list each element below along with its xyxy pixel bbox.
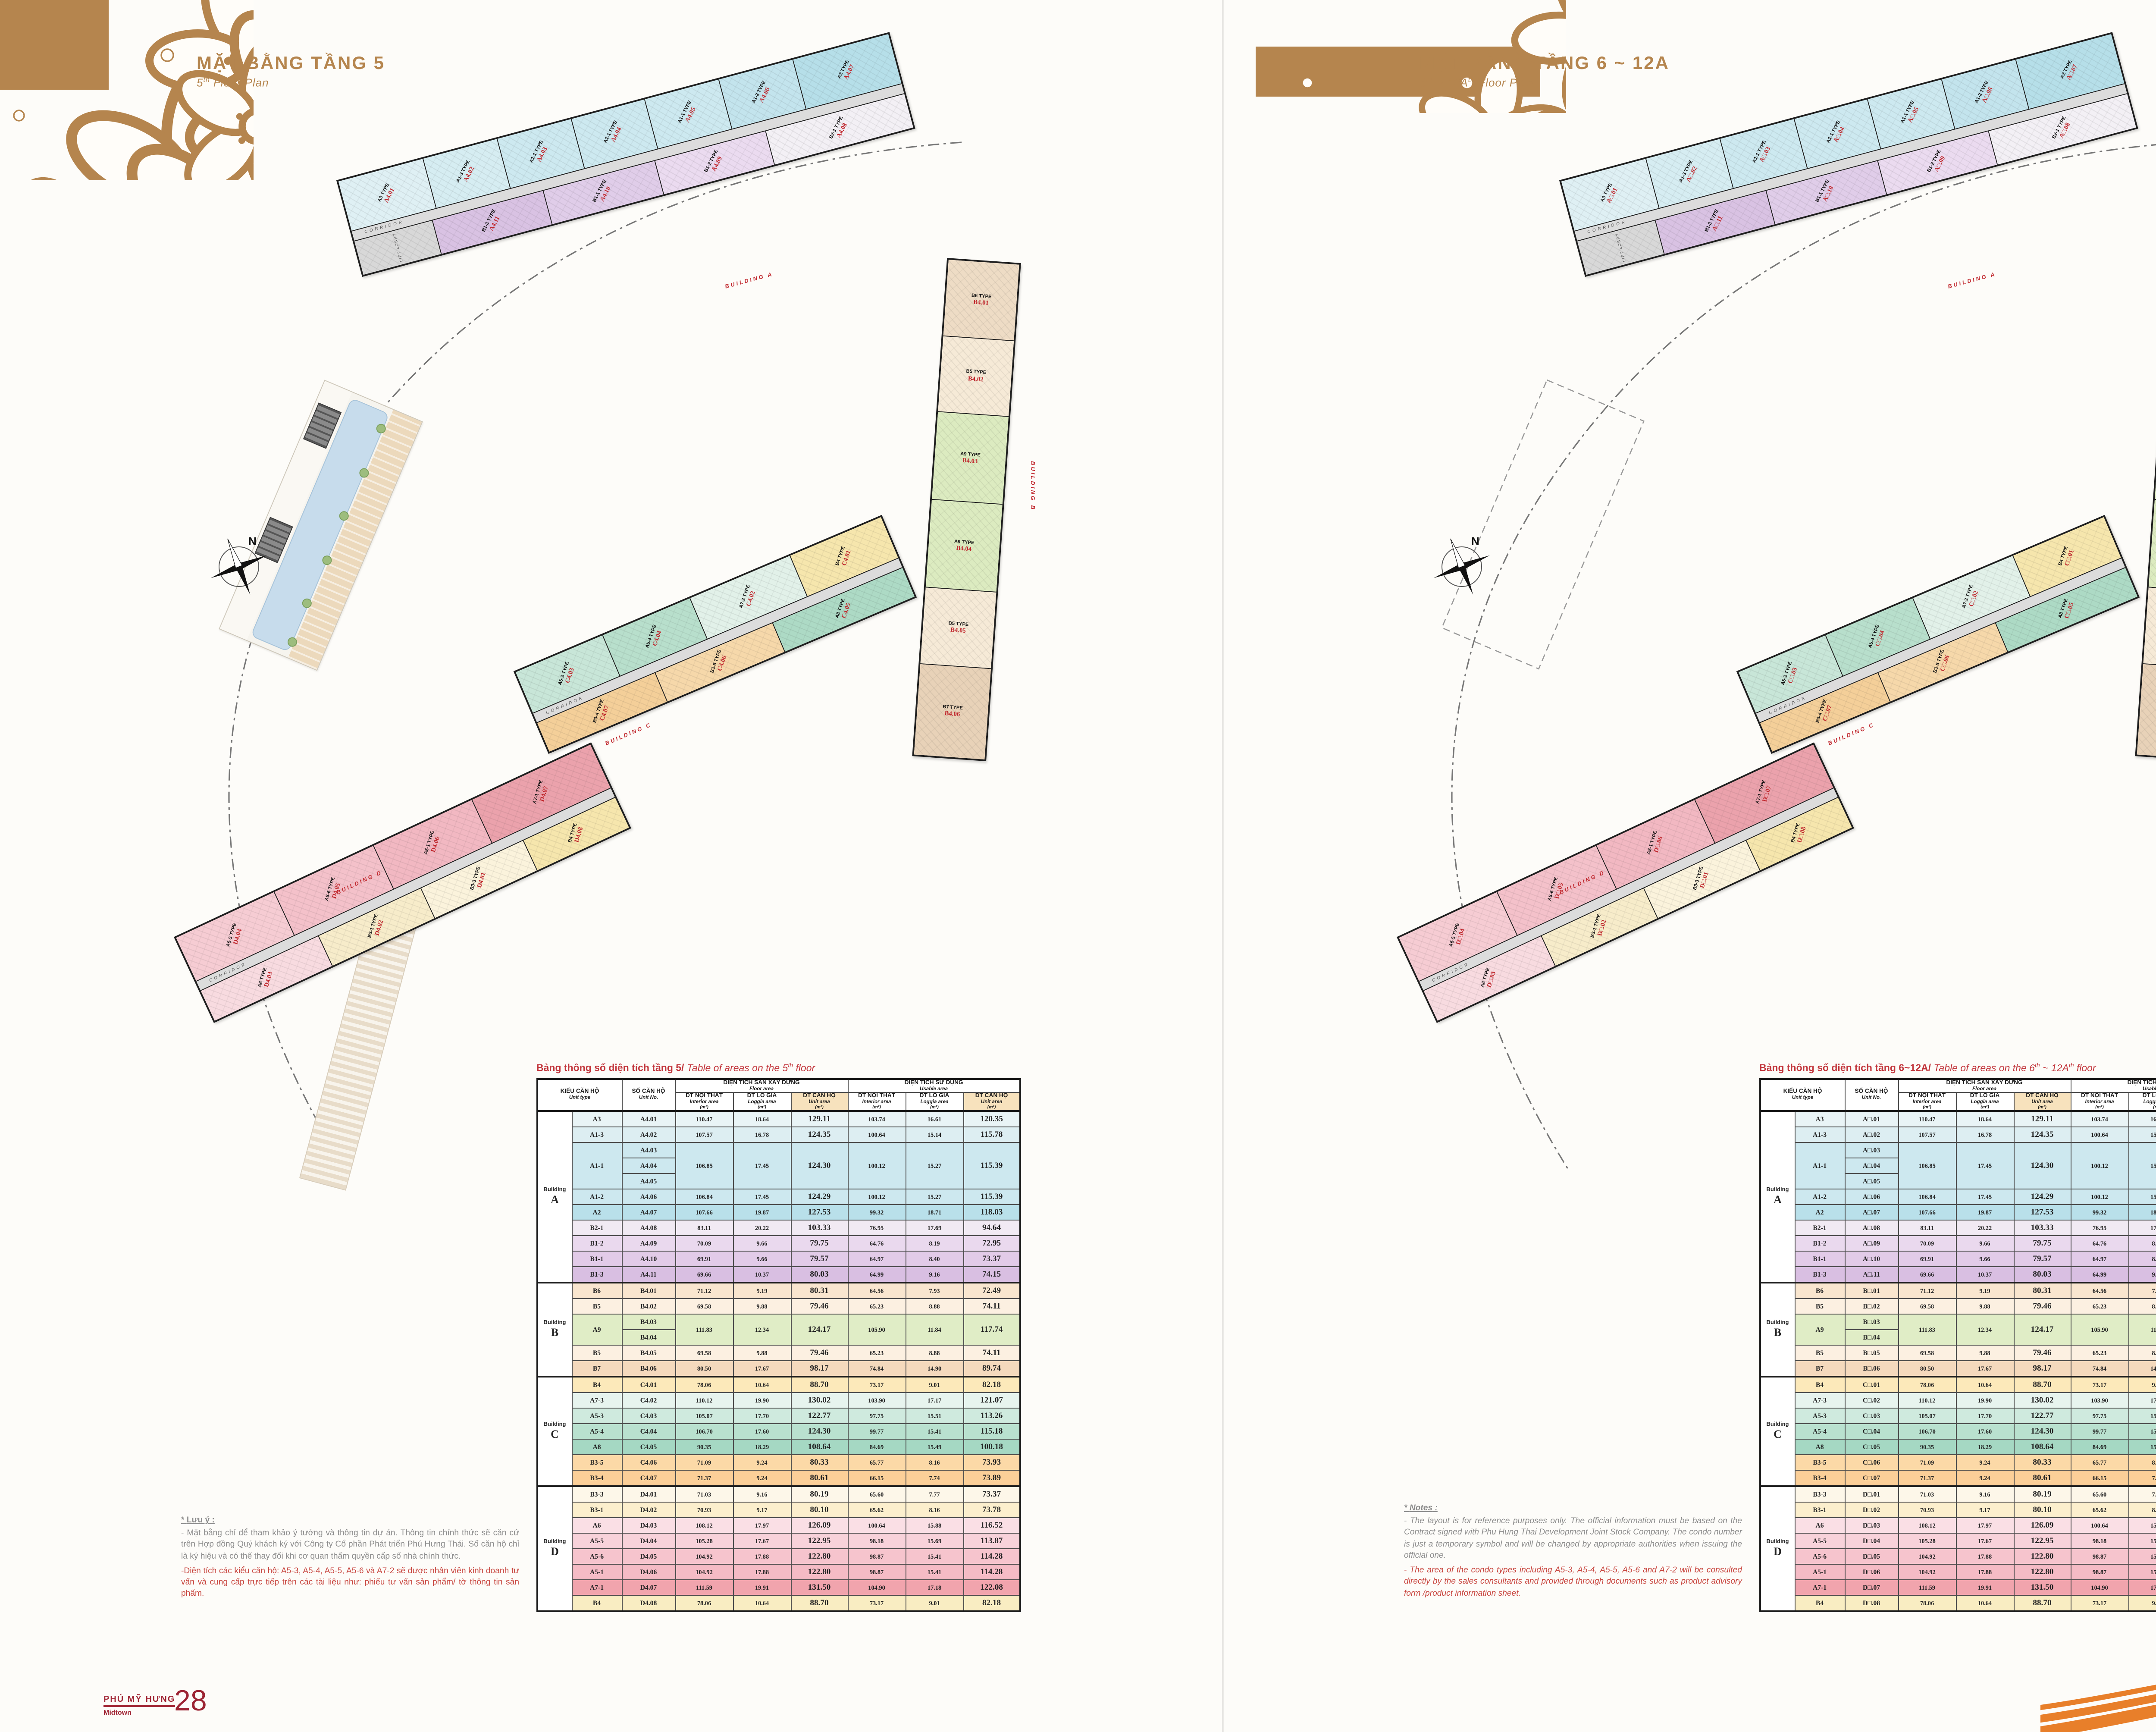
area-value-cell: 88.70 (791, 1596, 848, 1612)
unit-no-cell: D4.05 (622, 1549, 675, 1565)
brand-logo: PHÚ MỸ HƯNG (103, 1695, 175, 1707)
area-value-cell: 124.29 (2014, 1189, 2071, 1205)
area-value-cell: 8.16 (2128, 1455, 2156, 1471)
area-value-cell: 80.50 (675, 1361, 733, 1377)
area-value-cell: 72.95 (963, 1236, 1020, 1252)
area-value-cell: 18.64 (1956, 1111, 2014, 1127)
area-value-cell: 105.07 (675, 1409, 733, 1424)
area-value-cell: 10.37 (1956, 1267, 2014, 1283)
area-table: KIỂU CĂN HỘUnit type SỐ CĂN HỘUnit No. D… (536, 1078, 1021, 1613)
unit-no-cell: C□.03 (1845, 1409, 1898, 1424)
area-value-cell: 71.03 (1898, 1487, 1956, 1503)
area-value-cell: 103.74 (2071, 1111, 2128, 1127)
area-value-cell: 78.06 (675, 1596, 733, 1612)
area-value-cell: 9.16 (2128, 1267, 2156, 1283)
area-value-cell: 103.33 (2014, 1221, 2071, 1236)
area-value-cell: 80.03 (791, 1267, 848, 1283)
area-value-cell: 17.18 (906, 1580, 963, 1596)
area-value-cell: 65.23 (848, 1346, 906, 1361)
area-value-cell: 121.07 (963, 1393, 1020, 1409)
page-gutter (1222, 0, 1224, 1732)
area-value-cell: 122.80 (2014, 1565, 2071, 1580)
area-value-cell: 124.17 (2014, 1315, 2071, 1346)
unit-type-cell: A5-1 (1795, 1565, 1845, 1580)
unit-type-cell: B2-1 (572, 1221, 622, 1236)
area-value-cell: 99.32 (848, 1205, 906, 1221)
area-value-cell: 9.01 (906, 1596, 963, 1612)
area-value-cell: 80.03 (2014, 1267, 2071, 1283)
area-value-cell: 104.92 (675, 1549, 733, 1565)
area-value-cell: 18.64 (733, 1111, 791, 1127)
area-value-cell: 19.87 (1956, 1205, 2014, 1221)
unit-no-cell: D□.02 (1845, 1503, 1898, 1518)
unit-no-cell: A4.07 (622, 1205, 675, 1221)
area-value-cell: 64.99 (2071, 1267, 2128, 1283)
area-value-cell: 98.18 (2071, 1534, 2128, 1549)
area-value-cell: 79.75 (2014, 1236, 2071, 1252)
area-value-cell: 122.80 (791, 1565, 848, 1580)
unit-no-cell: A4.11 (622, 1267, 675, 1283)
area-value-cell: 130.02 (2014, 1393, 2071, 1409)
area-value-cell: 131.50 (791, 1580, 848, 1596)
unit-no-cell: D□.07 (1845, 1580, 1898, 1596)
area-value-cell: 17.18 (2128, 1580, 2156, 1596)
area-value-cell: 9.24 (733, 1455, 791, 1471)
area-value-cell: 9.88 (1956, 1299, 2014, 1315)
unit-no-cell: A4.04 (622, 1158, 675, 1174)
area-value-cell: 99.32 (2071, 1205, 2128, 1221)
area-value-cell: 18.29 (1956, 1440, 2014, 1455)
area-value-cell: 120.35 (963, 1111, 1020, 1127)
area-value-cell: 15.41 (906, 1424, 963, 1440)
area-value-cell: 106.84 (675, 1189, 733, 1205)
area-value-cell: 108.12 (675, 1518, 733, 1534)
area-value-cell: 7.77 (906, 1487, 963, 1503)
area-value-cell: 15.41 (906, 1549, 963, 1565)
unit-no-cell: A4.06 (622, 1189, 675, 1205)
area-value-cell: 70.09 (1898, 1236, 1956, 1252)
area-value-cell: 73.17 (2071, 1377, 2128, 1393)
unit-type-cell: A5-3 (572, 1409, 622, 1424)
area-value-cell: 17.17 (906, 1393, 963, 1409)
unit-no-cell: C□.02 (1845, 1393, 1898, 1409)
table-caption: Bảng thông số diện tích tầng 5/ Table of… (536, 1063, 1026, 1074)
area-value-cell: 94.64 (963, 1221, 1020, 1236)
unit-no-cell: D□.03 (1845, 1518, 1898, 1534)
building-group-cell: BuildingC (537, 1377, 572, 1487)
area-value-cell: 71.03 (675, 1487, 733, 1503)
area-value-cell: 73.78 (963, 1503, 1020, 1518)
area-value-cell: 64.76 (2071, 1236, 2128, 1252)
area-value-cell: 111.83 (1898, 1315, 1956, 1346)
building-b-label: BUILDING B (1029, 461, 1035, 511)
area-value-cell: 17.60 (1956, 1424, 2014, 1440)
area-value-cell: 98.17 (2014, 1361, 2071, 1377)
area-value-cell: 12.34 (1956, 1315, 2014, 1346)
unit-no-cell: B□.03 (1845, 1315, 1898, 1330)
unit-no-cell: B4.03 (622, 1315, 675, 1330)
unit-no-cell: A□.03 (1845, 1143, 1898, 1158)
area-value-cell: 127.53 (2014, 1205, 2071, 1221)
area-value-cell: 80.10 (2014, 1503, 2071, 1518)
area-value-cell: 69.91 (1898, 1252, 1956, 1267)
unit-no-cell: A□.10 (1845, 1252, 1898, 1267)
unit-type-cell: A5-1 (572, 1565, 622, 1580)
area-value-cell: 80.33 (2014, 1455, 2071, 1471)
unit-type-cell: B3-4 (572, 1471, 622, 1487)
area-value-cell: 103.33 (791, 1221, 848, 1236)
area-value-cell: 15.41 (2128, 1424, 2156, 1440)
area-value-cell: 8.88 (906, 1299, 963, 1315)
area-value-cell: 19.91 (1956, 1580, 2014, 1596)
area-value-cell: 100.18 (963, 1440, 1020, 1455)
area-value-cell: 7.93 (2128, 1283, 2156, 1299)
area-value-cell: 114.28 (963, 1549, 1020, 1565)
unit-no-cell: A□.08 (1845, 1221, 1898, 1236)
area-value-cell: 100.64 (2071, 1518, 2128, 1534)
building-group-cell: BuildingA (537, 1111, 572, 1283)
area-value-cell: 65.23 (2071, 1299, 2128, 1315)
area-value-cell: 73.89 (963, 1471, 1020, 1487)
area-value-cell: 80.10 (791, 1503, 848, 1518)
unit-type-cell: A9 (1795, 1315, 1845, 1346)
area-value-cell: 124.35 (2014, 1127, 2071, 1143)
area-value-cell: 78.06 (1898, 1377, 1956, 1393)
area-value-cell: 8.88 (2128, 1299, 2156, 1315)
area-value-cell: 9.16 (1956, 1487, 2014, 1503)
plan-unit: B5 TYPEB4.02 (938, 336, 1014, 417)
area-value-cell: 98.18 (848, 1534, 906, 1549)
unit-type-cell: B1-3 (1795, 1267, 1845, 1283)
area-value-cell: 17.60 (733, 1424, 791, 1440)
area-value-cell: 65.62 (2071, 1503, 2128, 1518)
area-value-cell: 9.66 (1956, 1236, 2014, 1252)
area-value-cell: 15.27 (906, 1143, 963, 1189)
area-value-cell: 9.88 (1956, 1346, 2014, 1361)
unit-type-cell: A5-3 (1795, 1409, 1845, 1424)
area-value-cell: 15.51 (2128, 1409, 2156, 1424)
area-value-cell: 73.17 (848, 1377, 906, 1393)
area-value-cell: 66.15 (848, 1471, 906, 1487)
unit-type-cell: A6 (1795, 1518, 1845, 1534)
area-value-cell: 100.64 (848, 1127, 906, 1143)
area-value-cell: 72.49 (963, 1283, 1020, 1299)
area-value-cell: 89.74 (963, 1361, 1020, 1377)
area-value-cell: 17.70 (1956, 1409, 2014, 1424)
area-value-cell: 129.11 (791, 1111, 848, 1127)
unit-no-cell: D□.01 (1845, 1487, 1898, 1503)
area-value-cell: 9.01 (2128, 1596, 2156, 1612)
unit-no-cell: B□.04 (1845, 1330, 1898, 1346)
unit-type-cell: B1-2 (572, 1236, 622, 1252)
area-value-cell: 122.80 (791, 1549, 848, 1565)
note-body-red: -Diện tích các kiểu căn hộ: A5-3, A5-4, … (181, 1566, 519, 1600)
area-value-cell: 73.93 (963, 1455, 1020, 1471)
area-value-cell: 17.69 (2128, 1221, 2156, 1236)
area-value-cell: 71.12 (675, 1283, 733, 1299)
area-value-cell: 8.16 (906, 1503, 963, 1518)
area-value-cell: 9.01 (906, 1377, 963, 1393)
area-value-cell: 18.71 (906, 1205, 963, 1221)
area-value-cell: 15.88 (906, 1518, 963, 1534)
area-value-cell: 126.09 (2014, 1518, 2071, 1534)
area-value-cell: 100.12 (2071, 1143, 2128, 1189)
area-value-cell: 17.69 (906, 1221, 963, 1236)
unit-no-cell: A□.07 (1845, 1205, 1898, 1221)
area-value-cell: 65.23 (848, 1299, 906, 1315)
building-group-cell: BuildingD (1760, 1487, 1795, 1612)
unit-type-cell: A3 (1795, 1111, 1845, 1127)
area-value-cell: 122.95 (791, 1534, 848, 1549)
area-value-cell: 126.09 (791, 1518, 848, 1534)
area-value-cell: 90.35 (1898, 1440, 1956, 1455)
area-value-cell: 103.90 (2071, 1393, 2128, 1409)
area-value-cell: 88.70 (2014, 1377, 2071, 1393)
area-value-cell: 80.31 (791, 1283, 848, 1299)
unit-type-cell: B3-3 (1795, 1487, 1845, 1503)
building-group-cell: BuildingA (1760, 1111, 1795, 1283)
area-value-cell: 10.64 (733, 1377, 791, 1393)
notes-vietnamese: * Lưu ý : - Mặt bằng chỉ để tham khảo ý … (181, 1515, 519, 1603)
unit-type-cell: B1-1 (572, 1252, 622, 1267)
area-value-cell: 17.88 (1956, 1549, 2014, 1565)
unit-no-cell: C□.06 (1845, 1455, 1898, 1471)
area-value-cell: 127.53 (791, 1205, 848, 1221)
area-value-cell: 65.77 (848, 1455, 906, 1471)
unit-no-cell: D4.06 (622, 1565, 675, 1580)
unit-no-cell: D4.02 (622, 1503, 675, 1518)
unit-type-cell: A1-3 (572, 1127, 622, 1143)
unit-type-cell: B1-1 (1795, 1252, 1845, 1267)
area-value-cell: 124.30 (791, 1424, 848, 1440)
area-value-cell: 69.58 (675, 1299, 733, 1315)
area-value-cell: 80.61 (791, 1471, 848, 1487)
area-value-cell: 19.90 (1956, 1393, 2014, 1409)
unit-no-cell: B4.02 (622, 1299, 675, 1315)
area-value-cell: 124.30 (2014, 1143, 2071, 1189)
area-value-cell: 73.17 (2071, 1596, 2128, 1612)
area-value-cell: 104.90 (848, 1580, 906, 1596)
unit-no-cell: C4.06 (622, 1455, 675, 1471)
unit-type-cell: A2 (572, 1205, 622, 1221)
area-value-cell: 98.87 (848, 1549, 906, 1565)
area-value-cell: 104.92 (1898, 1549, 1956, 1565)
area-value-cell: 14.90 (2128, 1361, 2156, 1377)
unit-type-cell: B4 (1795, 1377, 1845, 1393)
area-value-cell: 73.37 (963, 1487, 1020, 1503)
unit-type-cell: A5-4 (572, 1424, 622, 1440)
area-value-cell: 71.09 (675, 1455, 733, 1471)
area-value-cell: 105.90 (848, 1315, 906, 1346)
area-value-cell: 17.45 (733, 1143, 791, 1189)
unit-type-cell: A1-1 (1795, 1143, 1845, 1189)
area-value-cell: 65.62 (848, 1503, 906, 1518)
area-value-cell: 9.24 (733, 1471, 791, 1487)
area-value-cell: 9.88 (733, 1346, 791, 1361)
page-floor-5: MẶT BẰNG TẦNG 5 5th Floor Plan (0, 0, 1223, 1732)
unit-type-cell: A1-2 (572, 1189, 622, 1205)
unit-no-cell: A□.02 (1845, 1127, 1898, 1143)
area-value-cell: 8.88 (2128, 1346, 2156, 1361)
area-value-cell: 15.51 (906, 1409, 963, 1424)
unit-no-cell: A4.09 (622, 1236, 675, 1252)
area-value-cell: 111.59 (675, 1580, 733, 1596)
area-value-cell: 113.87 (963, 1534, 1020, 1549)
swoosh-decor-icon (2040, 1628, 2156, 1732)
area-value-cell: 71.37 (1898, 1471, 1956, 1487)
area-value-cell: 100.12 (848, 1143, 906, 1189)
area-value-cell: 65.60 (848, 1487, 906, 1503)
unit-no-cell: A□.01 (1845, 1111, 1898, 1127)
area-value-cell: 15.41 (2128, 1549, 2156, 1565)
unit-no-cell: A4.08 (622, 1221, 675, 1236)
unit-no-cell: C□.04 (1845, 1424, 1898, 1440)
unit-type-cell: B5 (572, 1346, 622, 1361)
area-value-cell: 76.95 (848, 1221, 906, 1236)
area-value-cell: 106.85 (675, 1143, 733, 1189)
unit-no-cell: C4.05 (622, 1440, 675, 1455)
area-value-cell: 124.29 (791, 1189, 848, 1205)
area-value-cell: 124.35 (791, 1127, 848, 1143)
building-group-cell: BuildingB (537, 1283, 572, 1377)
area-value-cell: 115.39 (963, 1189, 1020, 1205)
area-value-cell: 17.45 (1956, 1189, 2014, 1205)
area-value-cell: 76.95 (2071, 1221, 2128, 1236)
area-value-cell: 18.29 (733, 1440, 791, 1455)
area-value-cell: 82.18 (963, 1377, 1020, 1393)
area-value-cell: 111.83 (675, 1315, 733, 1346)
unit-type-cell: A9 (572, 1315, 622, 1346)
unit-type-cell: A5-5 (572, 1534, 622, 1549)
area-value-cell: 15.49 (906, 1440, 963, 1455)
area-value-cell: 107.66 (675, 1205, 733, 1221)
table-caption: Bảng thông số diện tích tầng 6~12A/ Tabl… (1759, 1063, 2156, 1074)
area-value-cell: 69.91 (675, 1252, 733, 1267)
area-value-cell: 106.70 (675, 1424, 733, 1440)
area-value-cell: 7.74 (906, 1471, 963, 1487)
area-table-floor6-12a: Bảng thông số diện tích tầng 6~12A/ Tabl… (1759, 1063, 2156, 1613)
unit-type-cell: A1-1 (572, 1143, 622, 1189)
area-value-cell: 74.15 (963, 1267, 1020, 1283)
area-value-cell: 115.78 (963, 1127, 1020, 1143)
area-value-cell: 110.12 (675, 1393, 733, 1409)
area-value-cell: 98.87 (848, 1565, 906, 1580)
area-value-cell: 17.88 (1956, 1565, 2014, 1580)
area-value-cell: 131.50 (2014, 1580, 2071, 1596)
unit-no-cell: A4.02 (622, 1127, 675, 1143)
area-value-cell: 17.17 (2128, 1393, 2156, 1409)
unit-no-cell: B4.01 (622, 1283, 675, 1299)
area-value-cell: 74.11 (963, 1299, 1020, 1315)
area-value-cell: 104.90 (2071, 1580, 2128, 1596)
area-value-cell: 9.16 (733, 1487, 791, 1503)
area-value-cell: 11.84 (2128, 1315, 2156, 1346)
area-value-cell: 17.67 (733, 1361, 791, 1377)
unit-no-cell: A□.11 (1845, 1267, 1898, 1283)
area-value-cell: 17.67 (1956, 1361, 2014, 1377)
area-value-cell: 15.69 (906, 1534, 963, 1549)
area-value-cell: 98.87 (2071, 1549, 2128, 1565)
area-value-cell: 115.39 (963, 1143, 1020, 1189)
area-value-cell: 122.77 (2014, 1409, 2071, 1424)
area-value-cell: 84.69 (848, 1440, 906, 1455)
area-value-cell: 66.15 (2071, 1471, 2128, 1487)
area-value-cell: 79.46 (2014, 1346, 2071, 1361)
area-value-cell: 9.19 (733, 1283, 791, 1299)
area-value-cell: 64.99 (848, 1267, 906, 1283)
unit-type-cell: A5-6 (572, 1549, 622, 1565)
area-value-cell: 114.28 (963, 1565, 1020, 1580)
page-number: 28 (174, 1687, 207, 1715)
plan-unit: A9 TYPEB4.04 (926, 500, 1003, 593)
unit-type-cell: A5-4 (1795, 1424, 1845, 1440)
area-value-cell: 9.24 (1956, 1471, 2014, 1487)
area-value-cell: 116.52 (963, 1518, 1020, 1534)
unit-no-cell: D4.01 (622, 1487, 675, 1503)
area-value-cell: 17.97 (1956, 1518, 2014, 1534)
area-value-cell: 74.84 (848, 1361, 906, 1377)
area-value-cell: 15.49 (2128, 1440, 2156, 1455)
area-value-cell: 15.14 (2128, 1127, 2156, 1143)
area-value-cell: 18.71 (2128, 1205, 2156, 1221)
unit-type-cell: B3-3 (572, 1487, 622, 1503)
area-value-cell: 105.07 (1898, 1409, 1956, 1424)
area-value-cell: 9.17 (1956, 1503, 2014, 1518)
area-value-cell: 64.97 (848, 1252, 906, 1267)
unit-no-cell: D□.08 (1845, 1596, 1898, 1612)
unit-type-cell: A8 (1795, 1440, 1845, 1455)
area-value-cell: 104.92 (675, 1565, 733, 1580)
area-value-cell: 107.57 (675, 1127, 733, 1143)
area-value-cell: 8.88 (906, 1346, 963, 1361)
unit-no-cell: A4.03 (622, 1143, 675, 1158)
area-value-cell: 17.45 (733, 1189, 791, 1205)
area-value-cell: 16.61 (906, 1111, 963, 1127)
area-value-cell: 15.27 (906, 1189, 963, 1205)
area-value-cell: 78.06 (675, 1377, 733, 1393)
area-value-cell: 117.74 (963, 1315, 1020, 1346)
area-value-cell: 99.77 (848, 1424, 906, 1440)
area-value-cell: 9.66 (733, 1252, 791, 1267)
area-value-cell: 105.90 (2071, 1315, 2128, 1346)
area-value-cell: 14.90 (906, 1361, 963, 1377)
area-value-cell: 70.09 (675, 1236, 733, 1252)
area-value-cell: 10.64 (733, 1596, 791, 1612)
unit-type-cell: A7-3 (572, 1393, 622, 1409)
area-value-cell: 19.90 (733, 1393, 791, 1409)
area-value-cell: 97.75 (848, 1409, 906, 1424)
area-value-cell: 69.58 (1898, 1346, 1956, 1361)
area-value-cell: 83.11 (1898, 1221, 1956, 1236)
area-value-cell: 113.26 (963, 1409, 1020, 1424)
area-value-cell: 9.66 (733, 1236, 791, 1252)
area-value-cell: 79.57 (791, 1252, 848, 1267)
area-value-cell: 9.01 (2128, 1377, 2156, 1393)
unit-no-cell: C4.03 (622, 1409, 675, 1424)
unit-type-cell: A7-1 (1795, 1580, 1845, 1596)
compass-icon (207, 535, 271, 599)
unit-type-cell: A7-3 (1795, 1393, 1845, 1409)
area-value-cell: 64.56 (848, 1283, 906, 1299)
area-value-cell: 9.19 (1956, 1283, 2014, 1299)
unit-type-cell: B3-1 (572, 1503, 622, 1518)
unit-type-cell: B4 (572, 1377, 622, 1393)
unit-no-cell: A□.05 (1845, 1174, 1898, 1189)
unit-no-cell: D4.07 (622, 1580, 675, 1596)
unit-no-cell: C4.07 (622, 1471, 675, 1487)
unit-type-cell: B7 (572, 1361, 622, 1377)
unit-type-cell: B5 (1795, 1346, 1845, 1361)
